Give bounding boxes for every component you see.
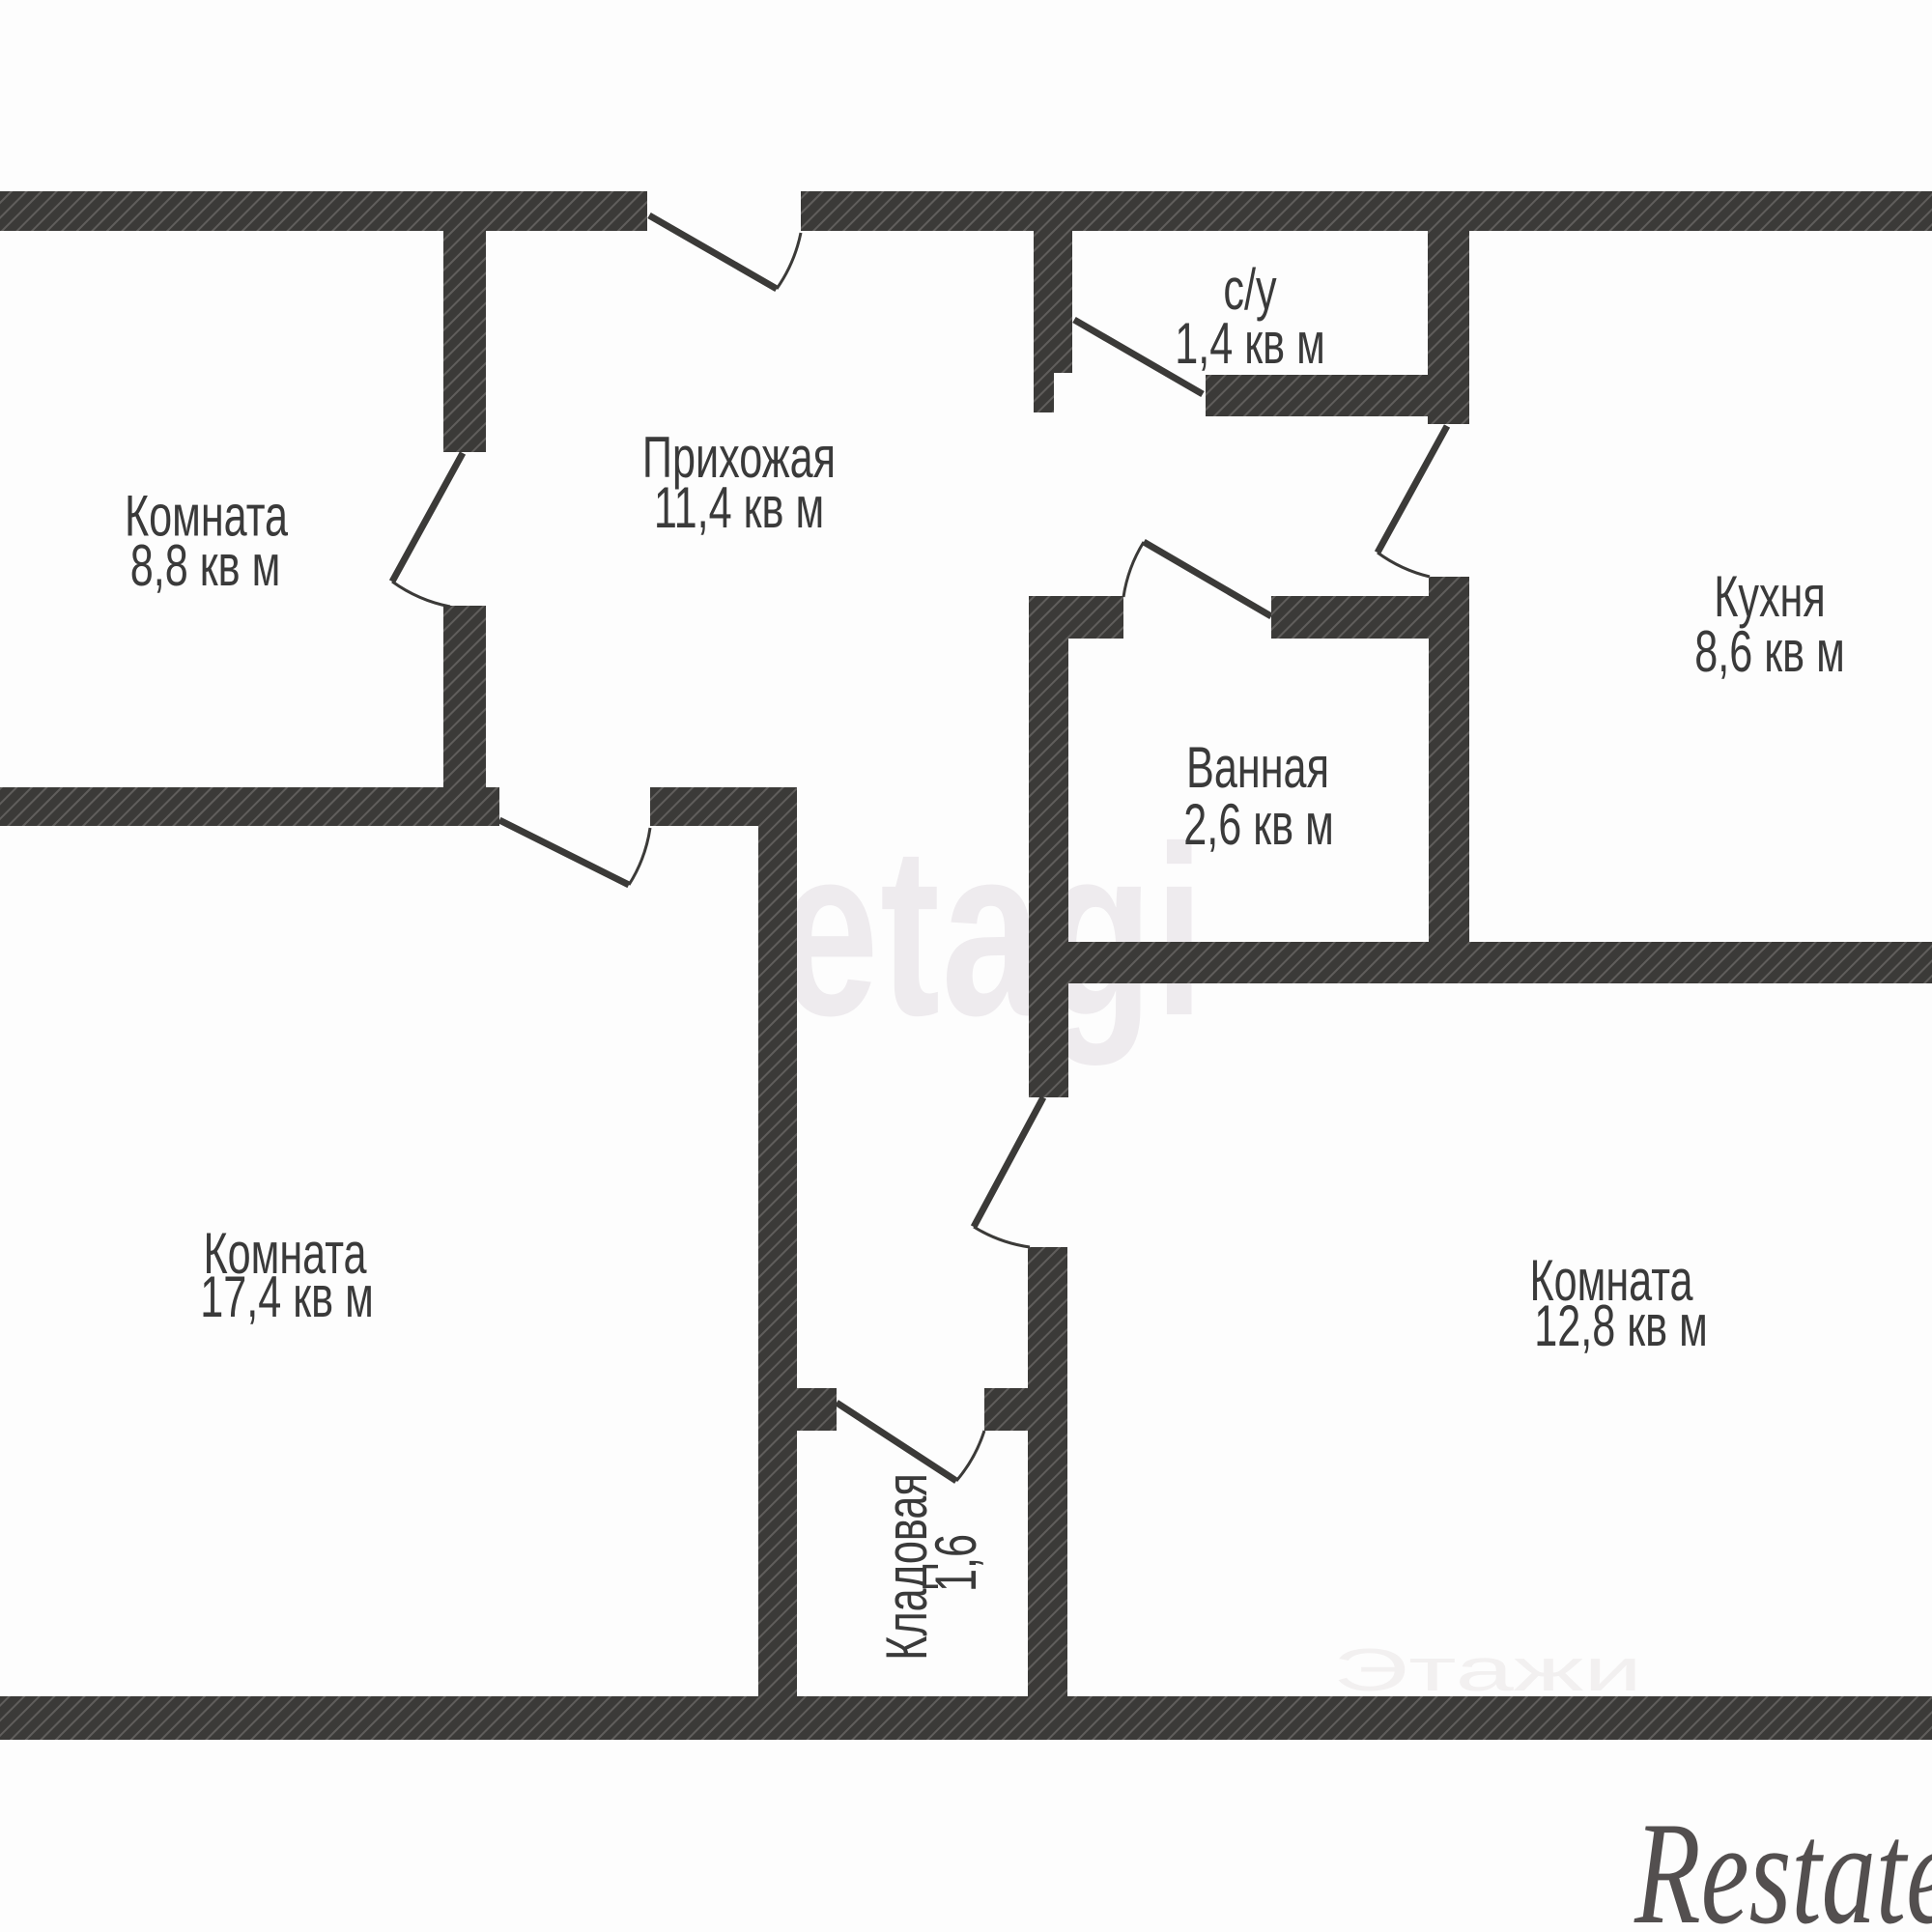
svg-text:1,6: 1,6 [924, 1534, 989, 1592]
svg-text:2,6 кв м: 2,6 кв м [1183, 793, 1334, 858]
svg-text:Ванная: Ванная [1186, 736, 1329, 801]
svg-text:8,8 кв м: 8,8 кв м [130, 534, 281, 599]
svg-text:Restate: Restate [1634, 1792, 1932, 1932]
svg-text:Этажи: Этажи [1333, 1636, 1642, 1703]
svg-text:17,4 кв м: 17,4 кв м [200, 1265, 374, 1330]
svg-text:etagi: etagi [779, 795, 1206, 1065]
svg-text:8,6 кв м: 8,6 кв м [1694, 620, 1845, 685]
svg-text:11,4 кв м: 11,4 кв м [654, 476, 824, 541]
svg-text:1,4 кв м: 1,4 кв м [1175, 312, 1325, 377]
svg-text:12,8 кв м: 12,8 кв м [1534, 1294, 1708, 1359]
